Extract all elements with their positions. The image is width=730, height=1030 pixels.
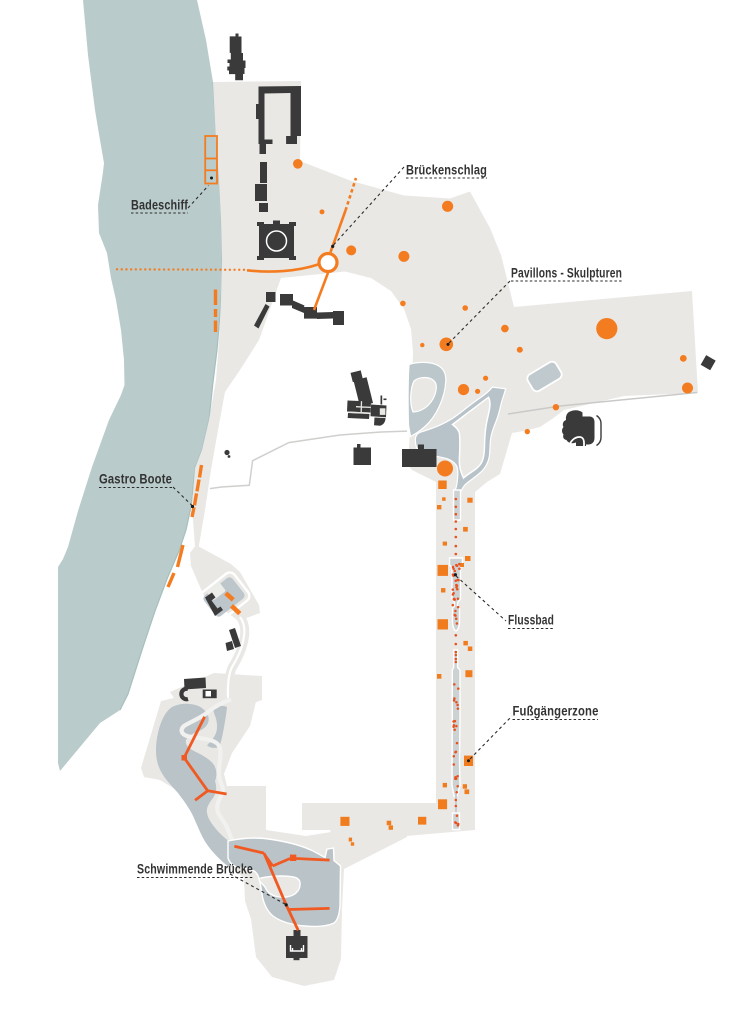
- svg-text:Fußgängerzone: Fußgängerzone: [513, 703, 599, 719]
- svg-text:Gastro Boote: Gastro Boote: [99, 471, 172, 487]
- svg-text:Brückenschlag: Brückenschlag: [406, 162, 487, 178]
- svg-text:Badeschiff: Badeschiff: [131, 196, 188, 212]
- svg-text:Pavillons - Skulpturen: Pavillons - Skulpturen: [511, 265, 622, 281]
- svg-text:Schwimmende Brücke: Schwimmende Brücke: [137, 861, 253, 877]
- svg-text:Flussbad: Flussbad: [508, 612, 554, 628]
